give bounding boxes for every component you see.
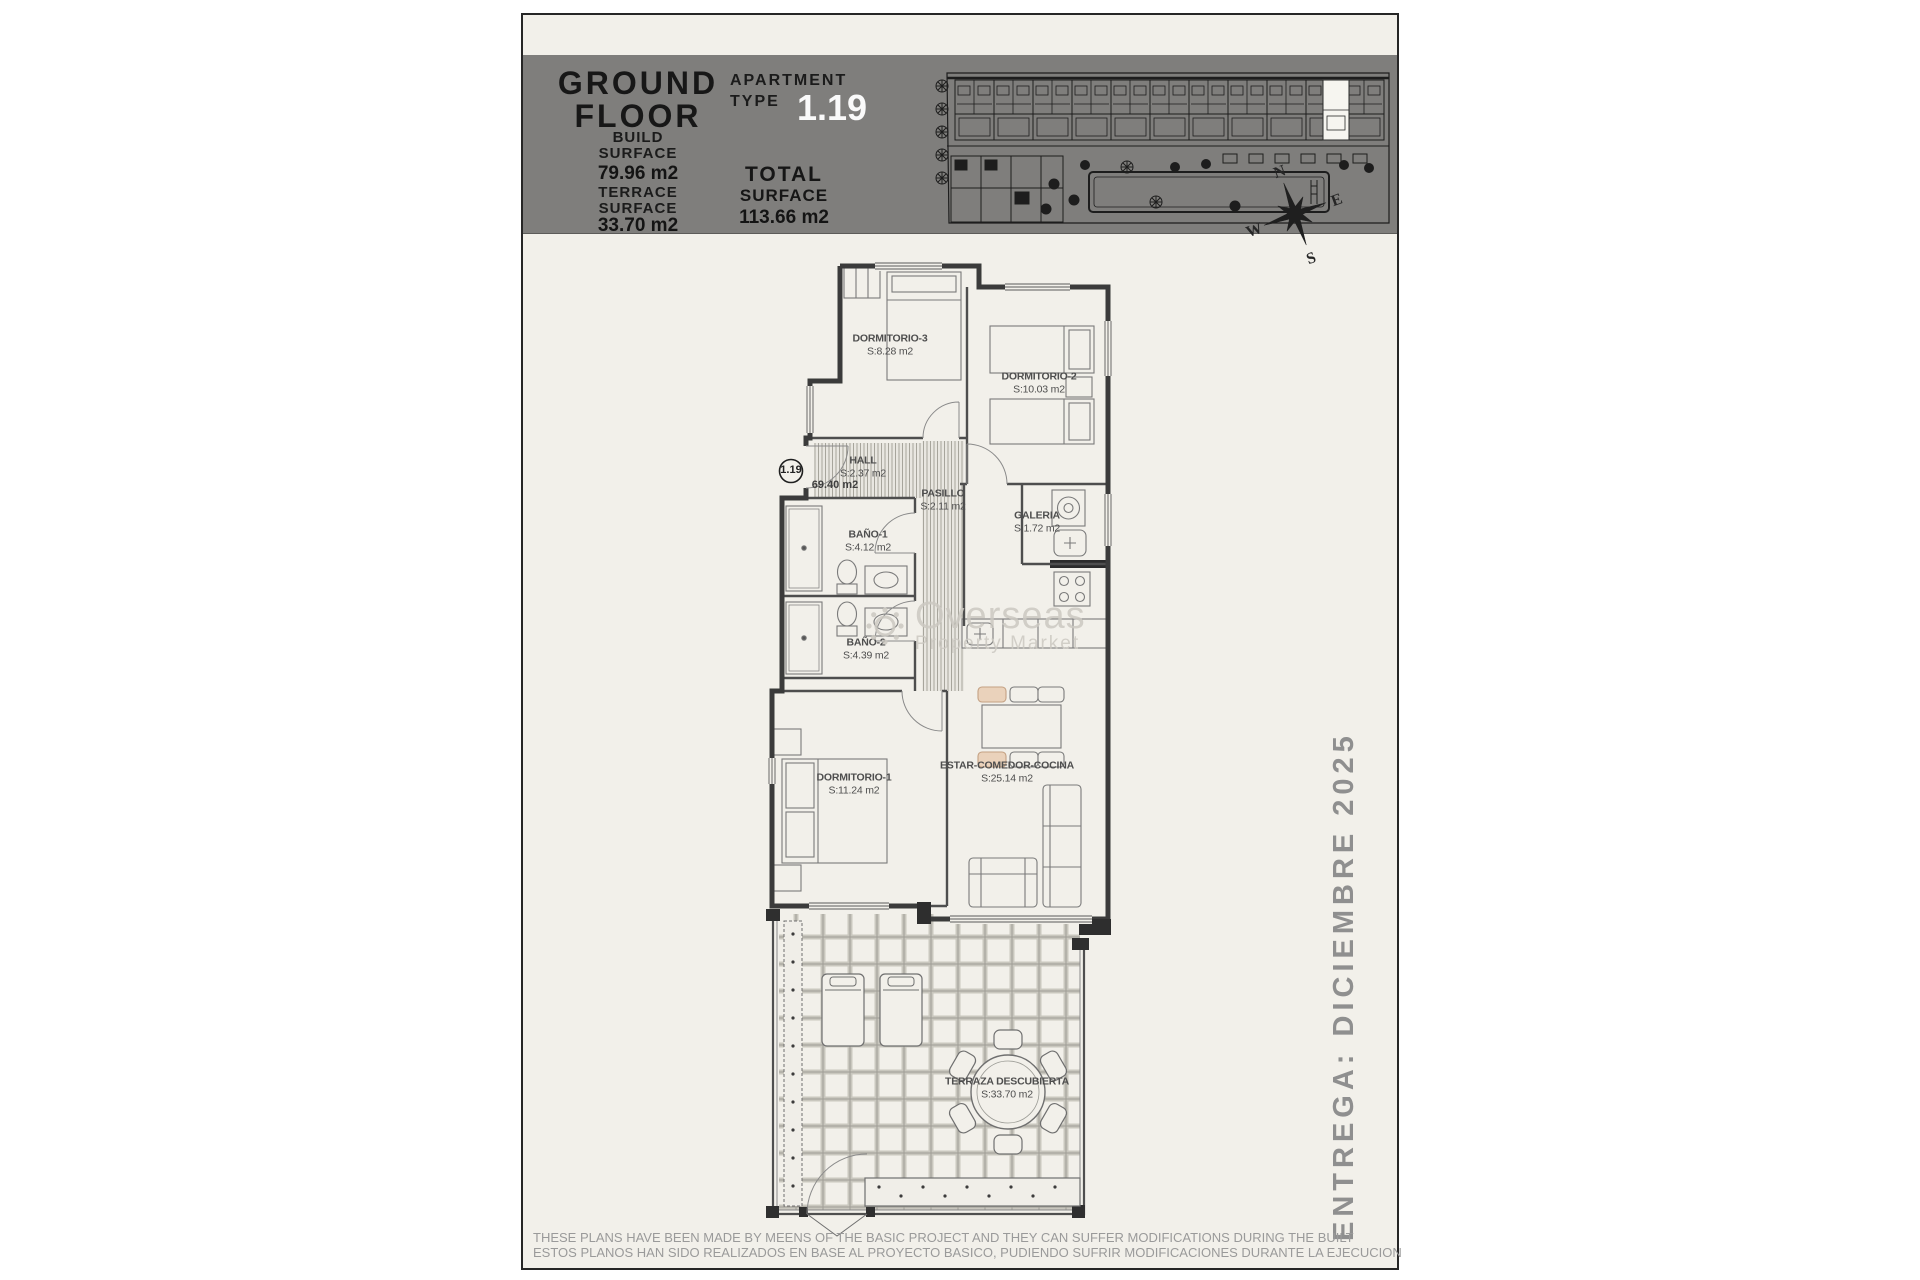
room-label-pasillo: PASILLOS:2.11 m2 [920,488,965,513]
delivery-note: ENTREGA: DICIEMBRE 2025 [1328,771,1358,1241]
room-label-bano-1: BAÑO-1S:4.12 m2 [845,529,891,554]
terrace-planter-left [784,921,802,1206]
total-surface-value: 113.66 m2 [689,207,879,229]
room-label-hall: HALLS:2.37 m2 [840,455,886,480]
watermark: Overseas Property Market [863,598,1086,654]
sun-lounger [880,974,922,1046]
page: GROUND FLOOR BUILD SURFACE 79.96 m2 TERR… [0,0,1920,1280]
plot-area-value: 69.40 m2 [812,479,858,491]
room-label-dormitorio-3: DORMITORIO-3S:8.28 m2 [853,333,928,358]
watermark-word1: Overseas [915,598,1086,634]
total-surface-label-1: TOTAL [689,163,879,187]
total-surface-label-2: SURFACE [689,186,879,206]
terrace-tiles [779,914,1080,1210]
build-surface-label: BUILD SURFACE [543,130,733,162]
compass-e: E [1329,191,1345,211]
sun-lounger [822,974,864,1046]
terrace-planter-bottom [865,1178,1080,1206]
room-label-galeria: GALERIAS:1.72 m2 [1014,510,1060,535]
disclaimer: THESE PLANS HAVE BEEN MADE BY MEENS OF T… [533,1230,1321,1260]
watermark-word2: Property Market [915,634,1086,654]
disclaimer-line-es: ESTOS PLANOS HAN SIDO REALIZADOS EN BASE… [533,1245,1321,1260]
plan-sheet: GROUND FLOOR BUILD SURFACE 79.96 m2 TERR… [521,13,1399,1270]
room-label-terraza-descubierta: TERRAZA DESCUBIERTAS:33.70 m2 [945,1076,1069,1101]
floor-title: GROUND FLOOR [543,67,733,133]
floor-title-line1: GROUND [543,67,733,100]
room-label-dormitorio-1: DORMITORIO-1S:11.24 m2 [817,772,892,797]
watermark-sun-icon [863,604,907,648]
room-label-dormitorio-2: DORMITORIO-2S:10.03 m2 [1002,371,1077,396]
apartment-type-number: 1.19 [797,87,867,129]
unit-marker-number: 1.19 [780,464,801,476]
compass-s: S [1304,249,1318,268]
site-plan-map [936,73,1389,223]
room-label-estar-comedor-cocina: ESTAR-COMEDOR-COCINAS:25.14 m2 [940,760,1074,785]
disclaimer-line-en: THESE PLANS HAVE BEEN MADE BY MEENS OF T… [533,1230,1321,1245]
